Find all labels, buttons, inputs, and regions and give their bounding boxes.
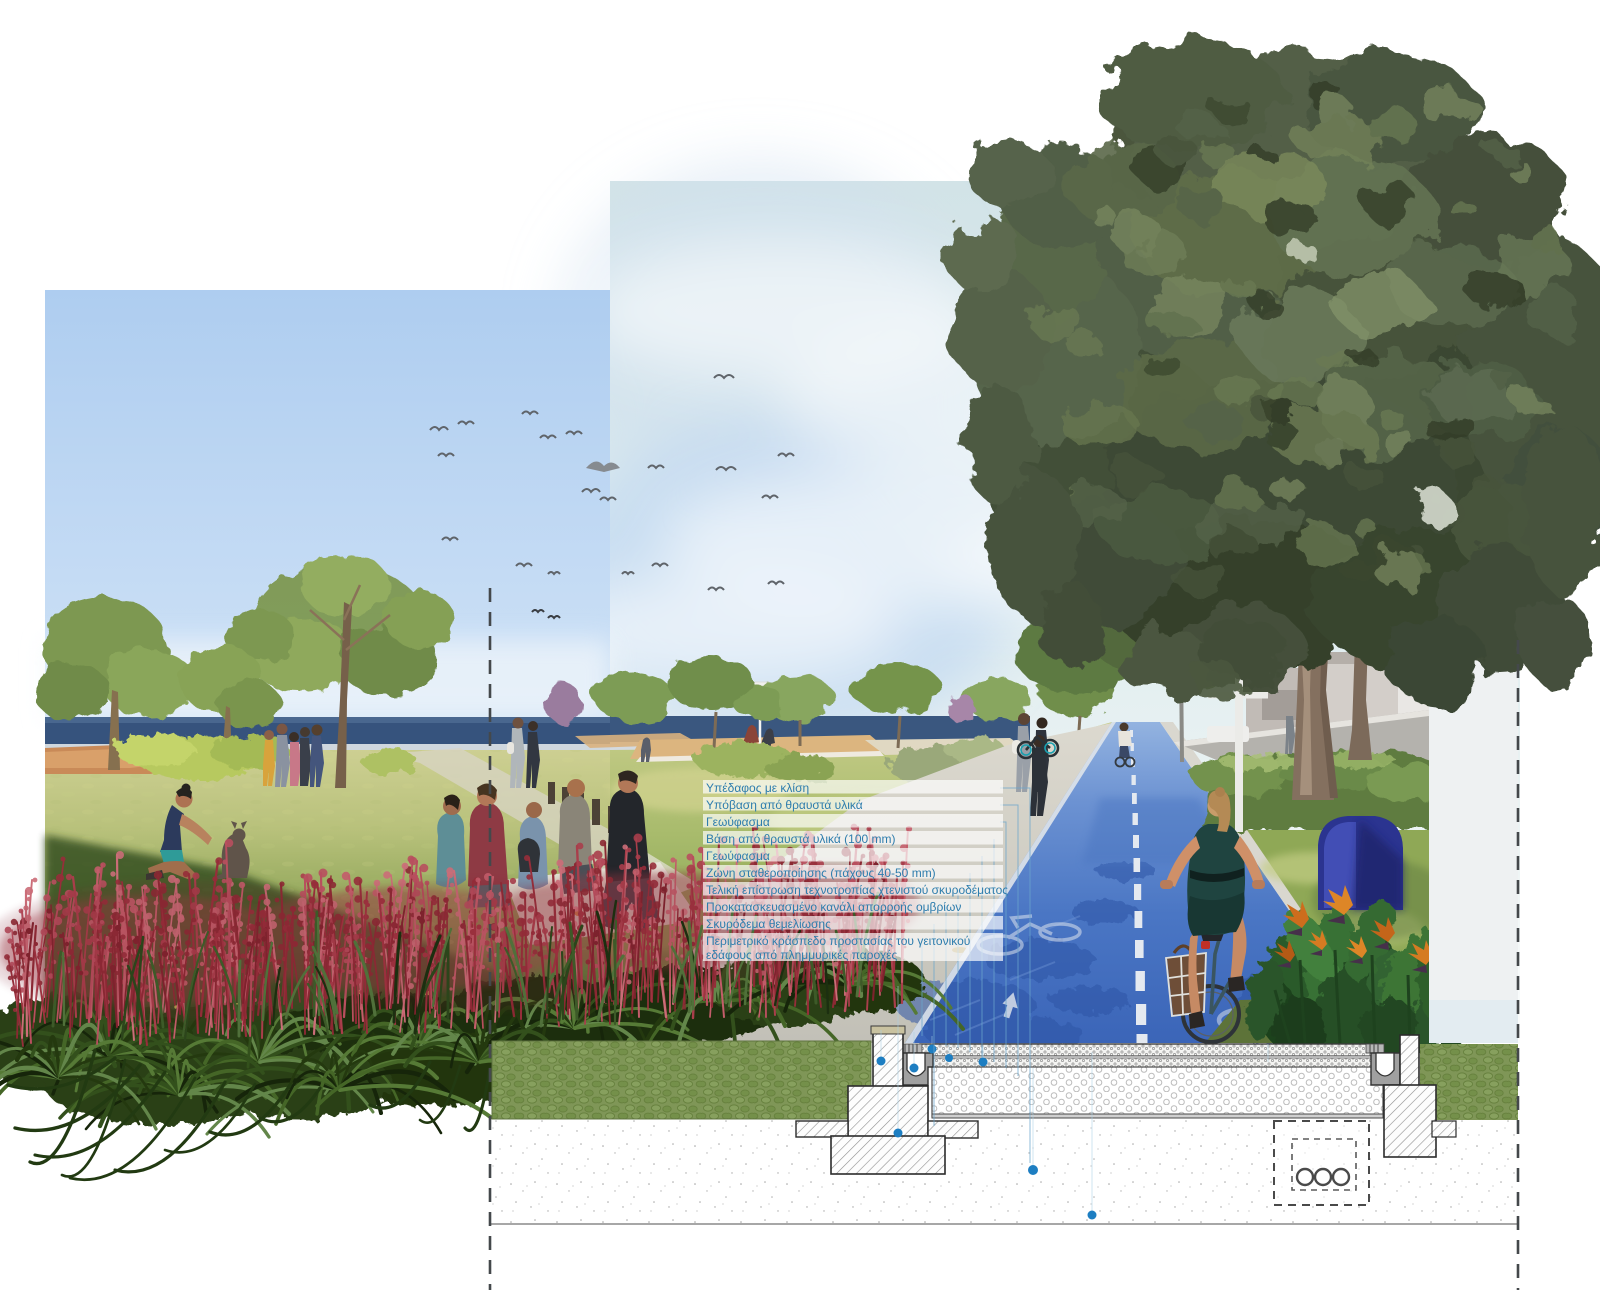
svg-text:Υπέδαφος με κλίση: Υπέδαφος με κλίση xyxy=(706,781,809,795)
svg-text:Σκυρόδεμα θεμελίωσης: Σκυρόδεμα θεμελίωσης xyxy=(706,917,831,931)
svg-text:Ζώνη σταθεροποίησης (πάχους 40: Ζώνη σταθεροποίησης (πάχους 40-50 mm) xyxy=(706,866,936,880)
svg-text:Περιμετρικό κράσπεδο προστασία: Περιμετρικό κράσπεδο προστασίας του γειτ… xyxy=(706,934,970,948)
svg-text:Γεωύφασμα: Γεωύφασμα xyxy=(706,849,770,863)
svg-text:Τελική επίστρωση τεχνοτροπίας: Τελική επίστρωση τεχνοτροπίας χτενιστού … xyxy=(706,883,1008,897)
svg-text:Γεωύφασμα: Γεωύφασμα xyxy=(706,815,770,829)
svg-text:Υπόβαση από θραυστά υλικά: Υπόβαση από θραυστά υλικά xyxy=(706,798,863,812)
svg-text:Βάση από θραυστά υλικά (100 mm: Βάση από θραυστά υλικά (100 mm) xyxy=(706,832,896,846)
svg-text:Προκατασκευασμένο κανάλι απορρ: Προκατασκευασμένο κανάλι απορροής ομβρίω… xyxy=(706,900,961,914)
svg-text:εδάφους από πλημμυρικές παροχέ: εδάφους από πλημμυρικές παροχές xyxy=(706,948,898,962)
